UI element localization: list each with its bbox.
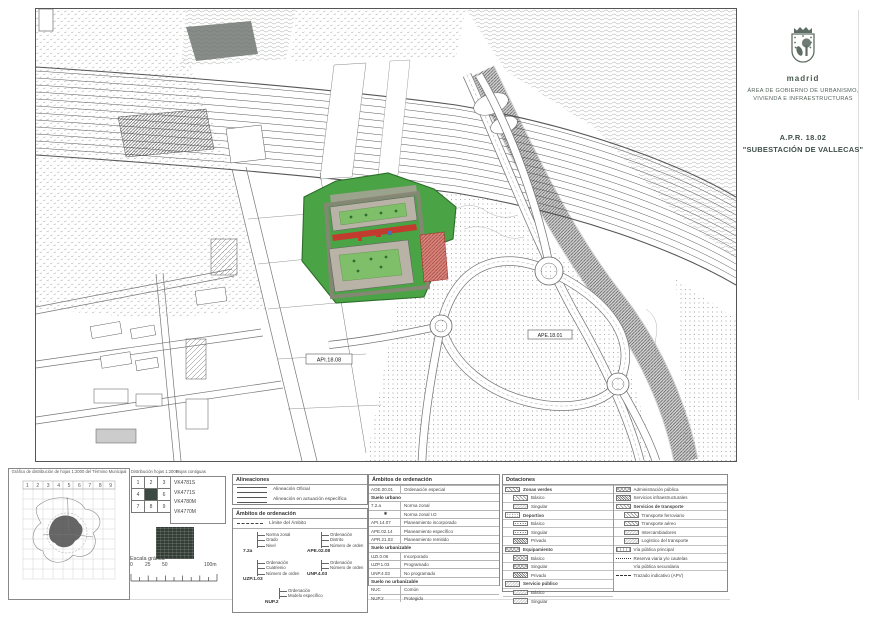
legend-label: Básico — [531, 495, 545, 500]
legend-row: Singular — [503, 527, 613, 536]
group-header: Zonas verdes — [503, 485, 613, 494]
group-header: Servicio público — [503, 579, 613, 588]
table-row: ✱Norma zonal I.D — [369, 510, 499, 518]
legend-row: Singular — [503, 502, 613, 511]
dashdot-line-sample — [616, 575, 631, 576]
table-row: APR.21.03Planeamiento remitido — [369, 535, 499, 543]
adjacent-sheets-title: Hojas contiguas — [176, 469, 206, 474]
row-code: APE.02.14 — [369, 527, 401, 534]
pattern-swatch — [624, 512, 639, 518]
table-row: UNP.4.03No programado — [369, 568, 499, 576]
line-sample-official — [237, 487, 267, 493]
row-label: Norma zonal I.D — [401, 512, 437, 517]
table-row: NUCComún — [369, 585, 499, 593]
legend-row: Singular — [503, 562, 613, 571]
legend-row: Logístico del transporte — [614, 536, 727, 545]
diagram-callouts: Ordenación Distrito Número de orden — [321, 532, 363, 549]
legend-label: Reserva viaria y/o cautelas — [634, 556, 688, 561]
group-label: Servicios de transporte — [634, 504, 684, 509]
grid-cell: 1 — [132, 477, 145, 489]
legend-label: Básico — [531, 590, 545, 595]
legend-label: Límite del Ámbito — [269, 521, 306, 526]
legend-label: Privado — [531, 538, 546, 543]
group-label: Equipamiento — [523, 547, 553, 552]
row-code: AOE.00.01 — [369, 486, 401, 493]
grid-cell: 2 — [145, 477, 158, 489]
plan-title: "SUBESTACIÓN DE VALLECAS" — [742, 145, 864, 154]
legend-label: Singular — [531, 564, 548, 569]
legend-row: Privado — [503, 570, 613, 579]
diagram-callouts: Norma zonal Grado Nivel — [257, 532, 299, 549]
pattern-swatch — [624, 530, 639, 536]
map-label-api: API.18.08 — [306, 354, 352, 364]
table-row: 7.2.aNorma zonal — [369, 501, 499, 509]
grid-cell: 4 — [132, 489, 145, 501]
boundary-line-sample — [237, 523, 263, 524]
legend-label: Singular — [531, 504, 548, 509]
scale-tick-0: 0 — [130, 562, 133, 568]
pattern-swatch — [513, 590, 528, 596]
legend-label: Administración pública — [634, 487, 679, 492]
legend-row: Privado — [503, 536, 613, 545]
table-row: UZI.0.06Incorporado — [369, 552, 499, 560]
pattern-swatch — [513, 495, 528, 501]
legend-row: Administración pública — [614, 485, 727, 494]
line-sample-specific — [237, 497, 267, 503]
row-code: 7.2.a — [369, 502, 401, 509]
diagram-callouts: Ordenación Cuatrienio Número de orden — [257, 560, 299, 577]
ambito-diagram: Norma zonal Grado Nivel 7.2a — [235, 531, 299, 559]
title-block: madrid ÁREA DE GOBIERNO DE URBANISMO, VI… — [742, 24, 864, 154]
legend-label: Transporte aéreo — [642, 521, 676, 526]
dotaciones-columns: Zonas verdes Básico Singular Deportivo B… — [503, 485, 727, 591]
pattern-swatch — [513, 538, 528, 544]
pattern-swatch — [505, 581, 520, 587]
diagram-code: UNP.4.03 — [307, 572, 363, 577]
legend-label: Trazado indicativo (APV) — [634, 573, 684, 578]
row-label: No programado — [401, 571, 435, 576]
frame-corner-box — [39, 9, 53, 31]
pattern-swatch — [624, 538, 639, 544]
ambito-diagram: Ordenación Cuatrienio Número de orden UZ… — [235, 559, 299, 587]
municipality-map: 1 2 3 4 5 6 7 8 9 — [9, 475, 127, 593]
pattern-swatch — [513, 504, 528, 510]
legend-ambitos-table: Ámbitos de ordenación AOE.00.01Ordenació… — [368, 474, 500, 586]
legend-row: Alineación Oficial — [233, 485, 367, 495]
scale-numbers: 0 25 50 100m — [130, 562, 225, 569]
row-code: ✱ — [369, 511, 401, 518]
legend-row: Trazado indicativo (APV) — [614, 570, 727, 579]
pattern-swatch — [513, 598, 528, 604]
pattern-swatch — [513, 555, 528, 561]
legend-dotaciones-title: Dotaciones — [503, 475, 727, 485]
legend-row: Transporte ferroviario — [614, 510, 727, 519]
sheet-index-grid: 1 2 3 4 6 7 8 9 — [131, 476, 171, 513]
legend-label: Servicios infraestructurales — [634, 495, 688, 500]
municipality-locator: Gráfico de distribución de hojas 1:2000 … — [8, 468, 130, 600]
section-label: Suelo urbanizable — [369, 545, 411, 550]
plan-code: A.P.R. 18.02 — [742, 133, 864, 142]
diagram-code: APE.02.08 — [307, 549, 363, 554]
city-plan-drawing: API.18.08 APE.18.01 — [36, 9, 736, 461]
table-row: NUP.2Protegido — [369, 594, 499, 602]
legend-label: Vía pública secundaria — [634, 564, 680, 569]
grid-cell: 9 — [158, 501, 171, 513]
row-label: Planeamiento incorporado — [401, 520, 457, 525]
table-section: Suelo urbanizable — [369, 543, 499, 551]
legend-label: Singular — [531, 530, 548, 535]
diagram-grid: Norma zonal Grado Nivel 7.2a Ordenación … — [233, 529, 367, 615]
sheet-code: VK4770M — [174, 508, 225, 518]
row-code: UNP.4.03 — [369, 569, 401, 576]
department-line2: VIVIENDA E INFRAESTRUCTURAS — [742, 95, 864, 103]
department-name: ÁREA DE GOBIERNO DE URBANISMO, VIVIENDA … — [742, 87, 864, 103]
dotaciones-right-column: Administración pública Servicios infraes… — [613, 485, 727, 591]
callout: Nivel — [258, 543, 299, 549]
table-row: APE.02.14Planeamiento específico — [369, 526, 499, 534]
diagram-callouts: Ordenación Modelo específico — [279, 588, 365, 599]
grid-index-title: Distribución hojas 1:2000 — [131, 469, 178, 474]
svg-text:API.18.08: API.18.08 — [317, 358, 342, 364]
registry-stamp — [156, 527, 194, 559]
table-row: UZP.1.03Programado — [369, 560, 499, 568]
diagram-code: NUP.2 — [265, 600, 365, 605]
department-line1: ÁREA DE GOBIERNO DE URBANISMO, — [742, 87, 864, 95]
pattern-swatch — [505, 512, 520, 518]
legend-row: Servicios infraestructurales — [614, 493, 727, 502]
row-label: Común — [401, 587, 419, 592]
pattern-swatch — [505, 487, 520, 493]
callout: Número de orden — [258, 571, 299, 577]
group-label: Servicio público — [523, 581, 558, 586]
legend-label: Privado — [531, 573, 546, 578]
legend-label: Transporte ferroviario — [642, 513, 685, 518]
legend-label: Intercambiadores — [642, 530, 677, 535]
legend-label: Logístico del transporte — [642, 538, 689, 543]
row-label: Incorporado — [401, 554, 428, 559]
row-code: APR.21.03 — [369, 536, 401, 543]
legend-dotaciones: Dotaciones Zonas verdes Básico Singular … — [502, 474, 728, 592]
pattern-swatch — [624, 521, 639, 527]
legend-row: Alineación en actuación específica — [233, 495, 367, 505]
group-label: Deportivo — [523, 513, 544, 518]
map-canvas: API.18.08 APE.18.01 — [35, 8, 737, 462]
row-code: API.14.07 — [369, 519, 401, 526]
row-label: Planeamiento específico — [401, 529, 453, 534]
legend-row: Singular — [503, 596, 613, 605]
legend-row: Transporte aéreo — [614, 519, 727, 528]
logo-caption: madrid — [742, 74, 864, 83]
legend-row: Básico — [503, 588, 613, 597]
legend-row: Intercambiadores — [614, 527, 727, 536]
row-label: Programado — [401, 562, 429, 567]
legend-label: Alineación Oficial — [273, 487, 310, 492]
row-label: Planeamiento remitido — [401, 537, 449, 542]
grid-cell: 3 — [158, 477, 171, 489]
sheet-code: VK4771S — [174, 489, 225, 499]
scale-tick-50: 50 — [162, 562, 168, 568]
dotted-line-sample — [616, 558, 631, 559]
row-code: UZI.0.06 — [369, 553, 401, 560]
madrid-coat-of-arms-icon — [786, 24, 820, 73]
callout: Modelo específico — [280, 593, 365, 599]
table-section: Suelo urbano — [369, 493, 499, 501]
legend-label: Básico — [531, 556, 545, 561]
table-row: AOE.00.01Ordenación especial — [369, 485, 499, 493]
callout: Número de orden — [322, 543, 363, 549]
legend-row: Límite del Ámbito — [233, 519, 367, 529]
row-label: Ordenación especial — [401, 487, 445, 492]
svg-text:APE.18.01: APE.18.01 — [538, 333, 563, 339]
table-row: API.14.07Planeamiento incorporado — [369, 518, 499, 526]
legend-ambitos-table-title: Ámbitos de ordenación — [369, 475, 499, 485]
sheet-codes-box: VK4781S VK4771S VK4780M VK4770M — [170, 476, 226, 524]
scale-tick-100: 100m — [204, 562, 217, 568]
grid-cell: 8 — [145, 501, 158, 513]
legend-row: Reserva viaria y/o cautelas — [614, 553, 727, 562]
legend-row: Básico — [503, 519, 613, 528]
pattern-swatch — [616, 495, 631, 501]
legend-row: Básico — [503, 553, 613, 562]
svg-text:1 2 3 4 5 6 7 8 9: 1 2 3 4 5 6 7 8 9 — [26, 483, 112, 489]
pattern-swatch — [513, 564, 528, 570]
diagram-code: 7.2a — [243, 549, 299, 554]
legend-row: Básico — [503, 493, 613, 502]
legend-ambitos-diagrams: Ámbitos de ordenación Límite del Ámbito … — [232, 508, 368, 613]
row-code: NUC — [369, 586, 401, 593]
pattern-swatch — [513, 572, 528, 578]
group-header: Equipamiento — [503, 545, 613, 554]
legend-row: Vía pública secundaria — [614, 562, 727, 571]
row-label: Norma zonal — [401, 503, 430, 508]
plan-sheet: API.18.08 APE.18.01 — [0, 0, 869, 624]
scale-bar — [130, 573, 218, 582]
pattern-swatch — [513, 530, 528, 536]
ambito-diagram: Ordenación Distrito Número de orden APE.… — [299, 531, 363, 559]
callout: Número de orden — [322, 565, 363, 571]
legend-label: Vía pública principal — [634, 547, 674, 552]
section-label: Suelo no urbanizable — [369, 579, 418, 584]
legend-label: Singular — [531, 599, 548, 604]
table-section: Suelo no urbanizable — [369, 577, 499, 585]
row-label: Protegido — [401, 596, 423, 601]
map-label-ape: APE.18.01 — [528, 330, 572, 339]
pattern-swatch — [616, 487, 631, 493]
row-code: UZP.1.03 — [369, 561, 401, 568]
group-label: Zonas verdes — [523, 487, 552, 492]
group-header: Servicios de transporte — [614, 502, 727, 511]
ambito-diagram: Ordenación Número de orden UNP.4.03 — [299, 559, 363, 587]
section-label: Suelo urbano — [369, 495, 401, 500]
sheet-code: VK4780M — [174, 498, 225, 508]
graphic-scale: Escala gráfica 0 25 50 100m — [130, 556, 225, 587]
pattern-swatch — [616, 547, 631, 553]
diagram-code: UZP.1.03 — [243, 577, 299, 582]
legend-ambitos-title: Ámbitos de ordenación — [233, 509, 367, 519]
dotaciones-left-column: Zonas verdes Básico Singular Deportivo B… — [503, 485, 613, 591]
legend-label: Básico — [531, 521, 545, 526]
grid-cell: 7 — [132, 501, 145, 513]
group-header: Deportivo — [503, 510, 613, 519]
scale-tick-25: 25 — [145, 562, 151, 568]
legend-alineaciones: Alineaciones Alineación Oficial Alineaci… — [232, 474, 368, 505]
pattern-swatch — [505, 547, 520, 553]
legend-label: Alineación en actuación específica — [273, 497, 347, 502]
sheet-code: VK4781S — [174, 479, 225, 489]
pattern-swatch — [513, 521, 528, 527]
grid-cell-selected — [145, 489, 158, 501]
legend-alineaciones-title: Alineaciones — [233, 475, 367, 485]
legend-row: Vía pública principal — [614, 545, 727, 554]
grid-cell: 6 — [158, 489, 171, 501]
ambito-diagram: Ordenación Modelo específico NUP.2 — [235, 587, 365, 613]
row-code: NUP.2 — [369, 595, 401, 602]
pattern-swatch — [616, 504, 631, 510]
diagram-callouts: Ordenación Número de orden — [321, 560, 363, 571]
